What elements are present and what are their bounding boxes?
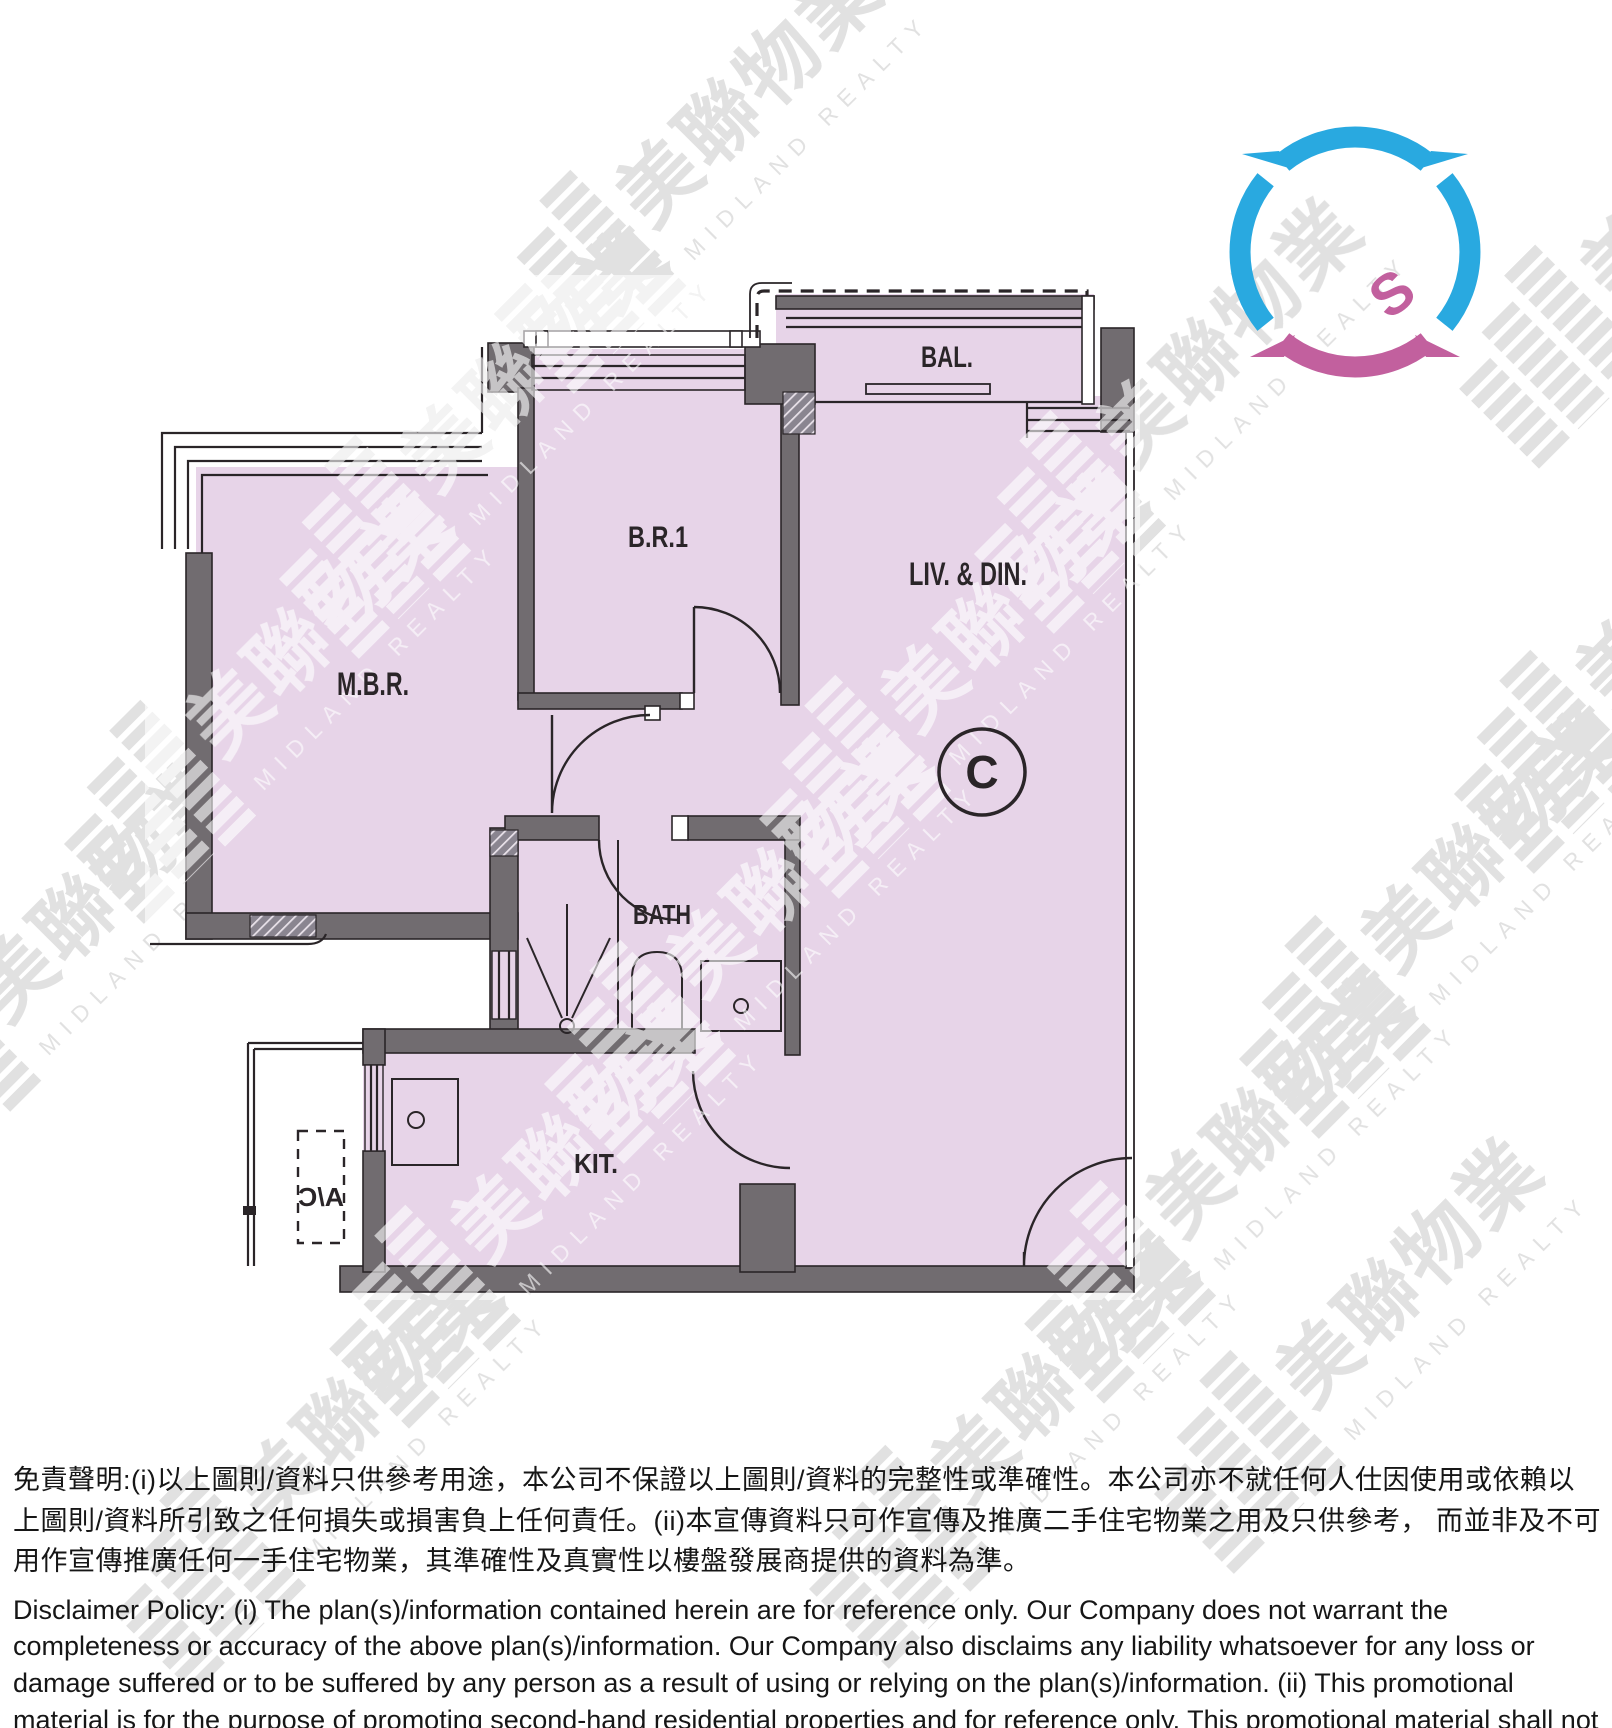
disclaimer-chinese: 免責聲明:(i)以上圖則/資料只供參考用途，本公司不保證以上圖則/資料的完整性或… xyxy=(13,1460,1601,1582)
room-label-balcony: BAL. xyxy=(921,341,973,374)
room-label-kitchen: KIT. xyxy=(574,1148,618,1179)
room-label-ac-platform: A/C xyxy=(298,1182,344,1212)
disclaimer-block: 免責聲明:(i)以上圖則/資料只供參考用途，本公司不保證以上圖則/資料的完整性或… xyxy=(13,1460,1601,1728)
unit-label: C xyxy=(965,746,998,798)
compass-north-tips xyxy=(1242,151,1468,169)
page: 美聯物業 MIDLAND REALTY xyxy=(0,0,1612,1728)
room-label-master-bedroom: M.B.R. xyxy=(337,666,409,702)
disclaimer-english: Disclaimer Policy: (i) The plan(s)/infor… xyxy=(13,1592,1601,1728)
room-label-bathroom: BATH xyxy=(633,899,691,930)
room-label-living-dining: LIV. & DIN. xyxy=(909,556,1027,592)
compass-south-label: S xyxy=(1357,256,1428,331)
room-label-bedroom1: B.R.1 xyxy=(628,521,688,554)
